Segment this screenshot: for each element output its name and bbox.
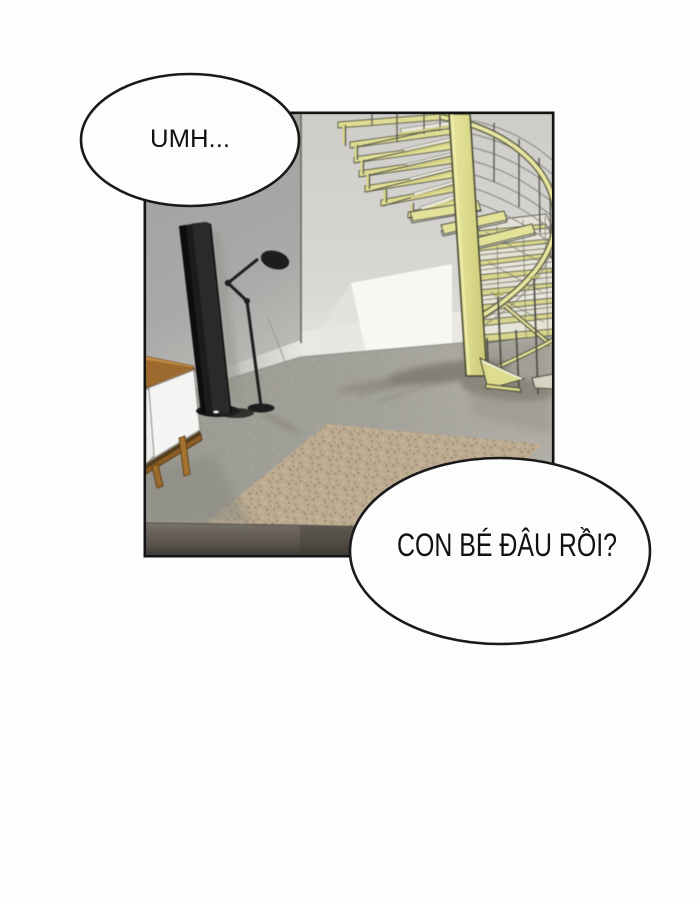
svg-text:UMH...: UMH... (150, 125, 230, 153)
svg-text:CON BÉ ĐÂU RỒI?: CON BÉ ĐÂU RỒI? (397, 527, 617, 563)
